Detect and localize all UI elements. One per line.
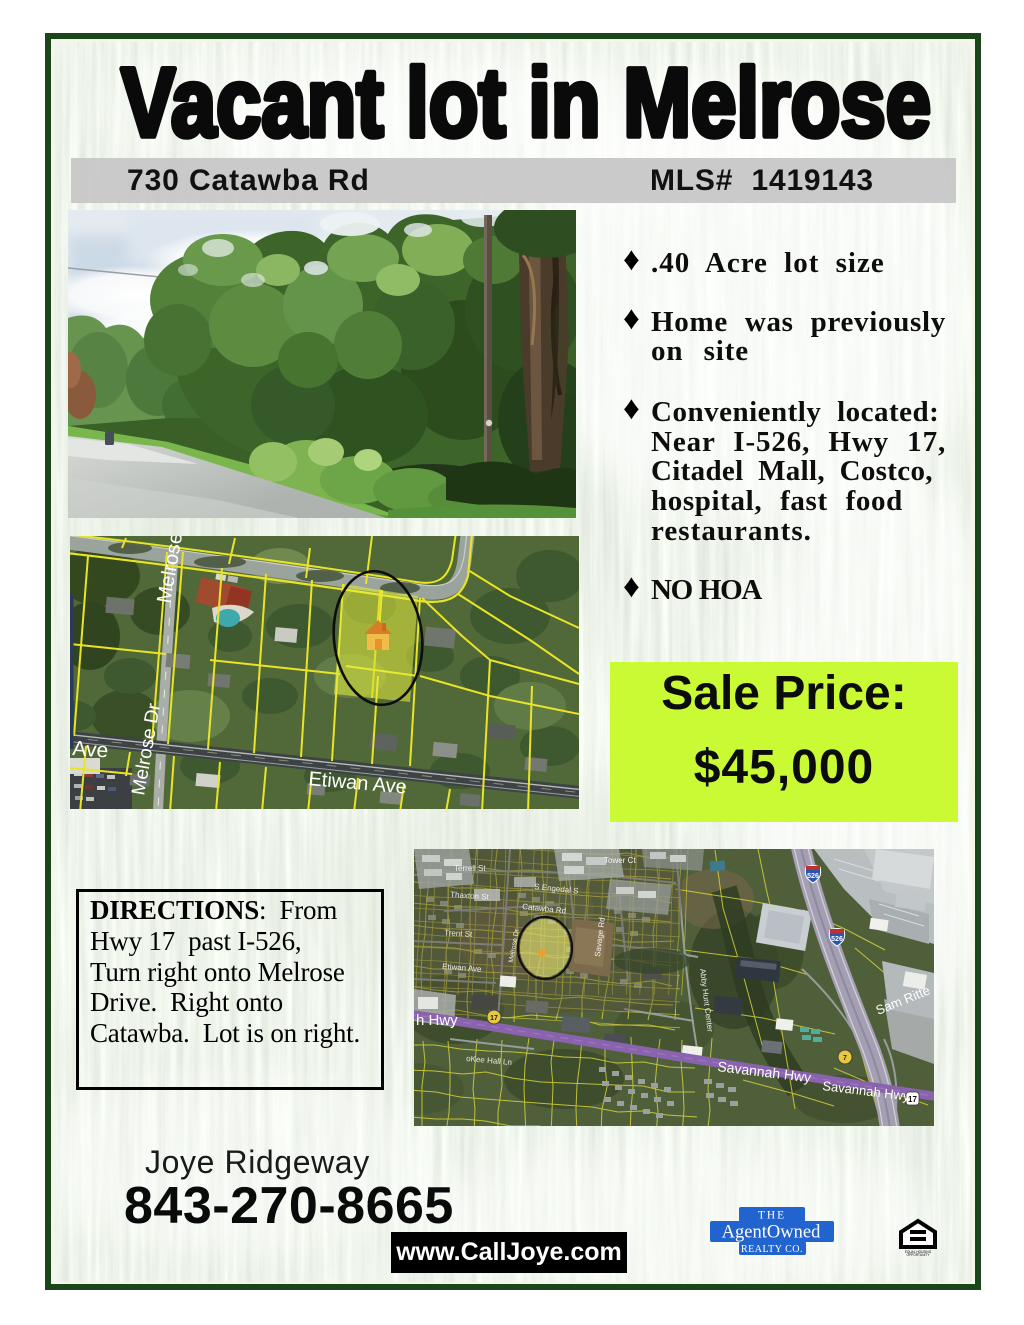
svg-text:AgentOwned: AgentOwned — [722, 1223, 821, 1243]
svg-text:OPPORTUNITY: OPPORTUNITY — [907, 1253, 931, 1256]
svg-text:7: 7 — [843, 1055, 847, 1062]
svg-text:Ave: Ave — [72, 737, 109, 762]
svg-text:h Hwy: h Hwy — [416, 1012, 458, 1029]
svg-text:Vacant lot in Melrose: Vacant lot in Melrose — [121, 48, 931, 157]
svg-text:526: 526 — [831, 936, 843, 943]
svg-text:Tower Ct: Tower Ct — [604, 856, 636, 865]
svg-text:REALTY CO.: REALTY CO. — [741, 1244, 803, 1255]
svg-text:Terrell St: Terrell St — [454, 864, 486, 873]
svg-text:THE: THE — [758, 1210, 786, 1222]
svg-text:17: 17 — [908, 1095, 917, 1104]
svg-text:17: 17 — [490, 1015, 498, 1022]
svg-text:526: 526 — [807, 873, 819, 880]
